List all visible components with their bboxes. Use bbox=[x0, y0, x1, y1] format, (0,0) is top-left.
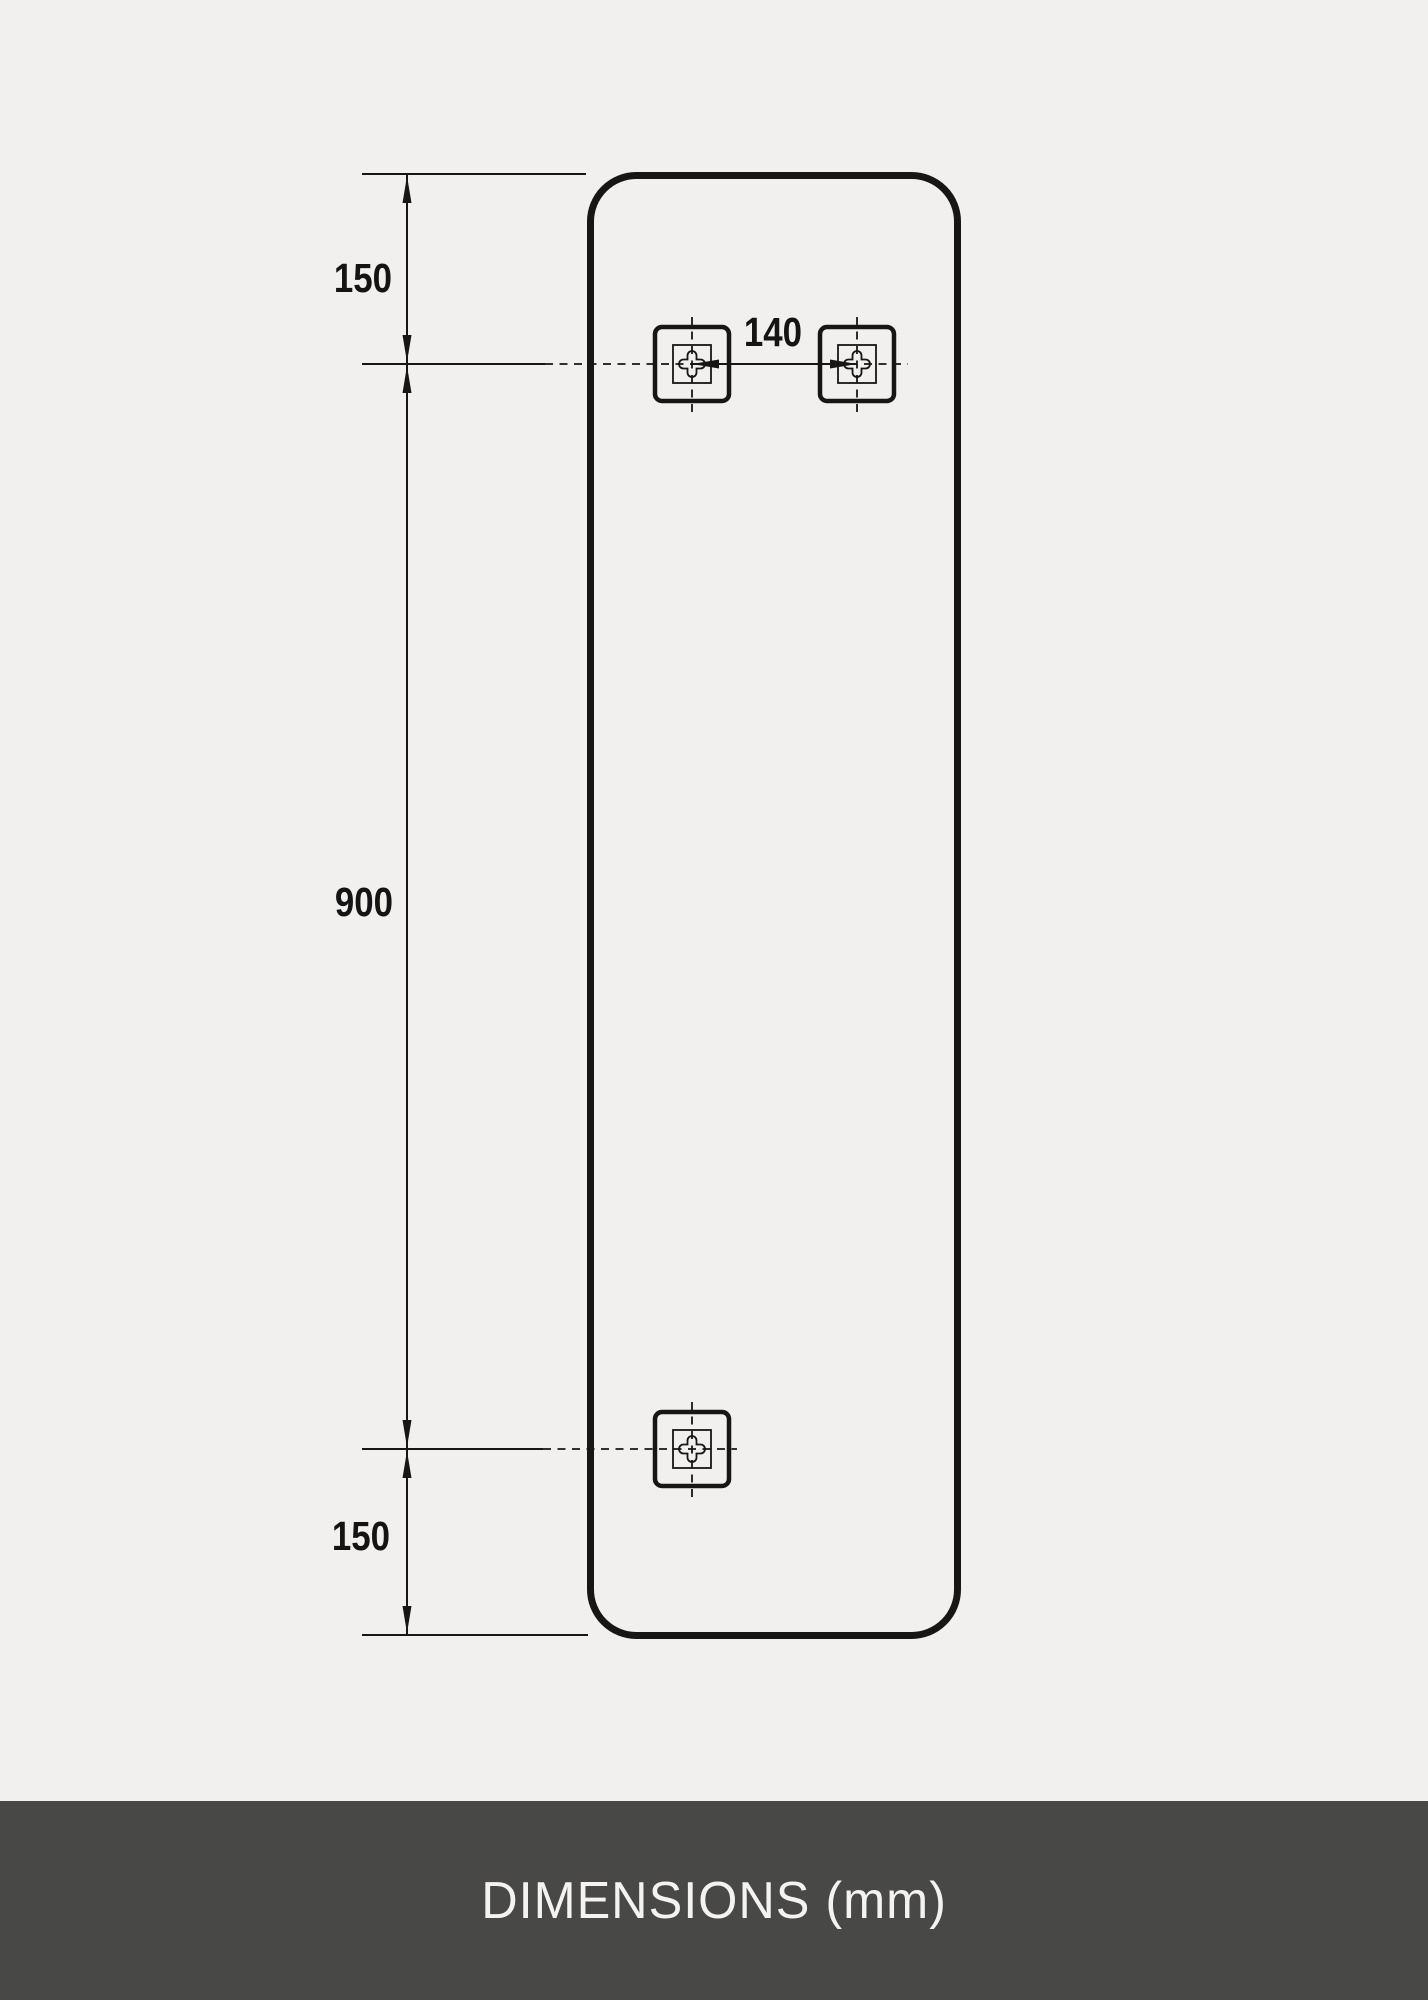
dimension-diagram-svg bbox=[0, 0, 1428, 1801]
footer-bar: DIMENSIONS (mm) bbox=[0, 1801, 1428, 2000]
arrow-down-icon bbox=[403, 335, 412, 362]
centerlines bbox=[543, 317, 908, 1497]
footer-title: DIMENSIONS (mm) bbox=[481, 1871, 947, 1931]
panel-outline bbox=[591, 176, 958, 1636]
arrow-up-icon bbox=[403, 366, 412, 393]
arrow-up-icon bbox=[403, 176, 412, 203]
arrow-up-icon bbox=[403, 1451, 412, 1478]
vertical-dimension-line bbox=[403, 174, 412, 1635]
extension-lines bbox=[362, 174, 588, 1635]
dimension-label-top-offset: 150 bbox=[307, 257, 392, 299]
dimension-label-bottom-offset: 150 bbox=[305, 1515, 390, 1557]
page: 150 900 150 140 DIMENSIONS (mm) bbox=[0, 0, 1428, 2000]
horizontal-dimension-line bbox=[692, 360, 857, 369]
dimension-label-keyhole-spacing: 140 bbox=[722, 311, 824, 353]
arrow-down-icon bbox=[403, 1606, 412, 1633]
dimension-label-center-span: 900 bbox=[308, 881, 393, 923]
arrow-down-icon bbox=[403, 1420, 412, 1447]
technical-drawing: 150 900 150 140 bbox=[0, 0, 1428, 1801]
